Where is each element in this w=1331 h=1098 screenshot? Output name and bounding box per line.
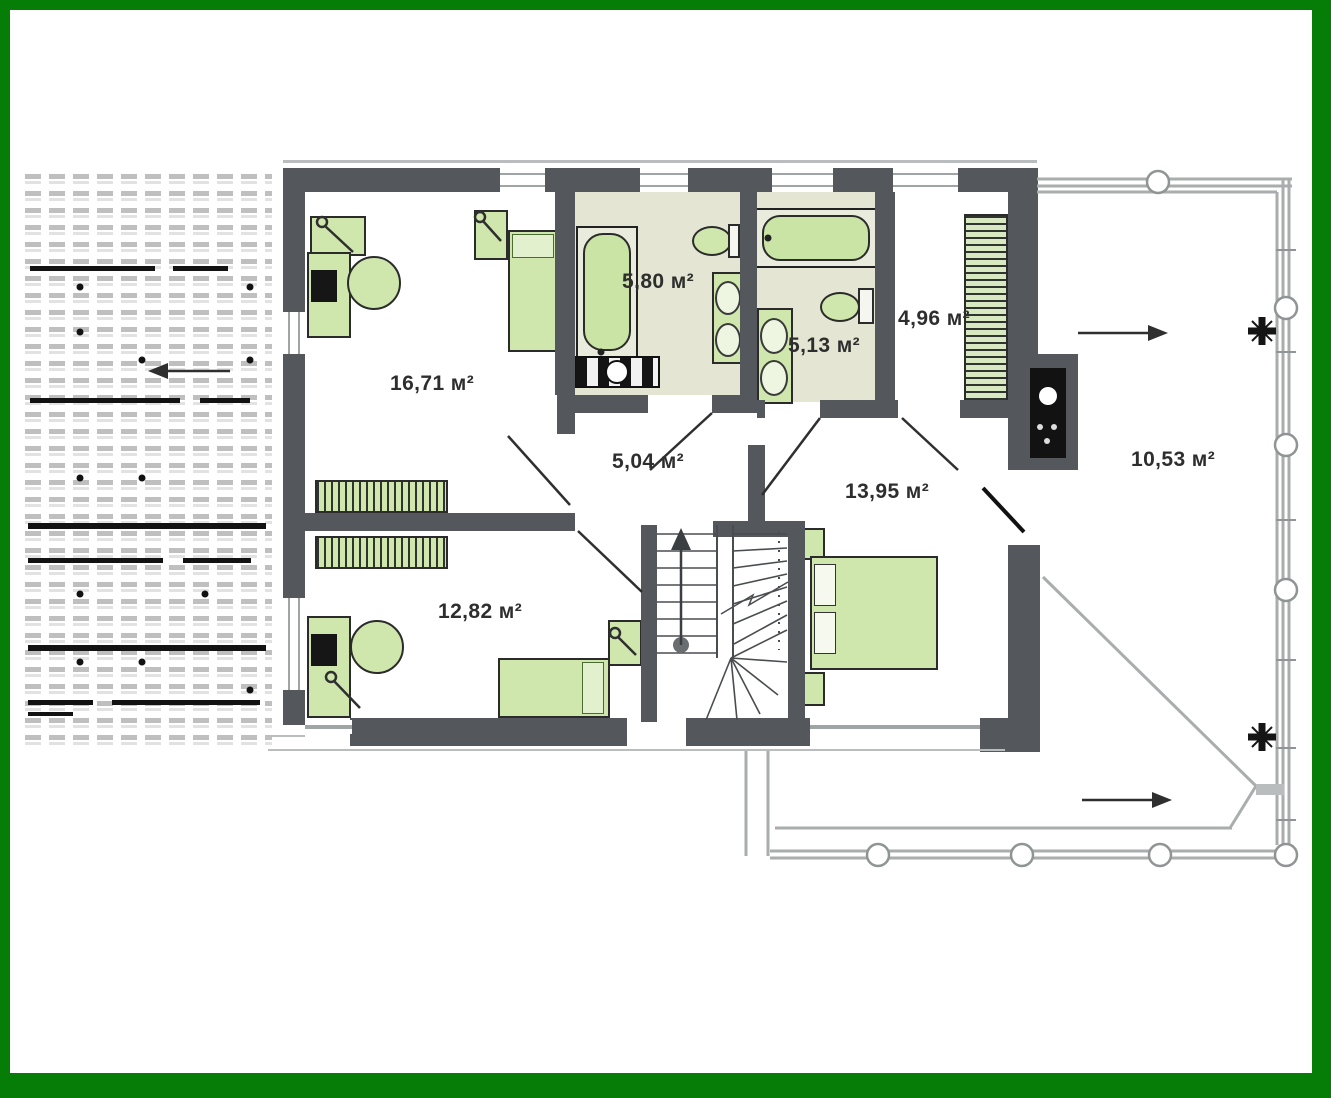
chair xyxy=(347,256,401,310)
wardrobe xyxy=(315,536,448,569)
stair-up-arrow-icon xyxy=(671,528,691,653)
sink-basin xyxy=(715,281,741,315)
sink-basin xyxy=(715,323,741,357)
roof-hatch xyxy=(25,168,272,750)
toilet xyxy=(820,292,860,322)
window xyxy=(500,168,545,192)
railing-ticks xyxy=(1276,250,1296,820)
room-area-label: 12,82 м² xyxy=(438,600,522,624)
wardrobe xyxy=(964,214,1008,412)
wall-segment-right-top xyxy=(1008,168,1038,360)
eave-line xyxy=(283,160,1037,163)
room-area-label: 5,80 м² xyxy=(622,270,694,294)
window xyxy=(305,720,352,734)
wall-segment-bath2-a xyxy=(757,400,765,418)
nightstand xyxy=(474,210,508,260)
room-area-label: 16,71 м² xyxy=(390,372,474,396)
bathtub xyxy=(755,208,877,268)
pillow xyxy=(814,564,836,606)
room-area-label: 4,96 м² xyxy=(898,307,970,331)
sink-basin xyxy=(760,360,788,396)
room-area-label: 5,04 м² xyxy=(612,450,684,474)
stove-dot-icon xyxy=(1051,424,1057,430)
chair xyxy=(350,620,404,674)
window xyxy=(283,598,305,690)
nightstand xyxy=(608,620,642,666)
wall-segment-hall-bed2 xyxy=(748,445,765,525)
toilet-tank xyxy=(858,288,874,324)
stove-dot-icon xyxy=(1044,438,1050,444)
nightstand xyxy=(310,216,366,256)
drain-cross-icon xyxy=(1248,317,1276,751)
room-area-label: 10,53 м² xyxy=(1131,448,1215,472)
window xyxy=(283,312,305,354)
toilet xyxy=(692,226,732,256)
wall-segment-bottom-2 xyxy=(686,718,810,746)
room-area-label: 13,95 м² xyxy=(845,480,929,504)
stove-panel xyxy=(1030,368,1066,458)
wall-segment-bed1-bath xyxy=(555,192,575,395)
stove-dot-icon xyxy=(1037,424,1043,430)
railing-post-icon xyxy=(867,171,1297,866)
wardrobe xyxy=(315,480,448,513)
wall-segment-bath1-bath2 xyxy=(740,192,757,402)
pillow xyxy=(512,234,554,258)
wall-segment-right-bottom xyxy=(1008,545,1040,752)
window xyxy=(772,168,833,192)
right-arrow-icon xyxy=(1078,325,1172,808)
pillow xyxy=(814,612,836,654)
desk xyxy=(307,616,351,718)
floor-plan-page: 16,71 м² 5,80 м² 5,13 м² 4,96 м² 5,04 м²… xyxy=(0,0,1331,1098)
drain-cross-ticks xyxy=(1252,321,1272,747)
room-area-label: 5,13 м² xyxy=(788,334,860,358)
sink-basin xyxy=(760,318,788,354)
wall-segment-bath2-closet xyxy=(875,192,895,402)
stove-burner-icon xyxy=(1039,387,1057,405)
window xyxy=(640,168,688,192)
left-arrow-icon xyxy=(148,363,230,379)
desk-monitor xyxy=(311,270,337,302)
pillow xyxy=(582,662,604,714)
desk-monitor xyxy=(311,634,337,666)
green-border-frame xyxy=(0,0,1331,1098)
staircase xyxy=(657,525,788,720)
wall-segment-stairs-left xyxy=(641,525,657,722)
wall-segment-bath1-hall-a xyxy=(557,395,648,413)
wall-segment-bath2-b xyxy=(820,400,898,418)
gutter-connector xyxy=(1256,784,1284,795)
window xyxy=(893,168,958,192)
terrace-door-leaf xyxy=(983,488,1024,532)
wall-segment-bottom-1 xyxy=(350,718,627,746)
wall-segment-closet xyxy=(960,400,1008,418)
toilet-tank xyxy=(728,224,740,258)
plan-linework xyxy=(0,0,1331,1098)
washing-machine xyxy=(574,356,660,388)
wall-segment-stairs-right xyxy=(788,525,805,722)
wall-segment-bed1-bed3 xyxy=(283,513,575,531)
terrace-glass-door xyxy=(810,720,980,734)
